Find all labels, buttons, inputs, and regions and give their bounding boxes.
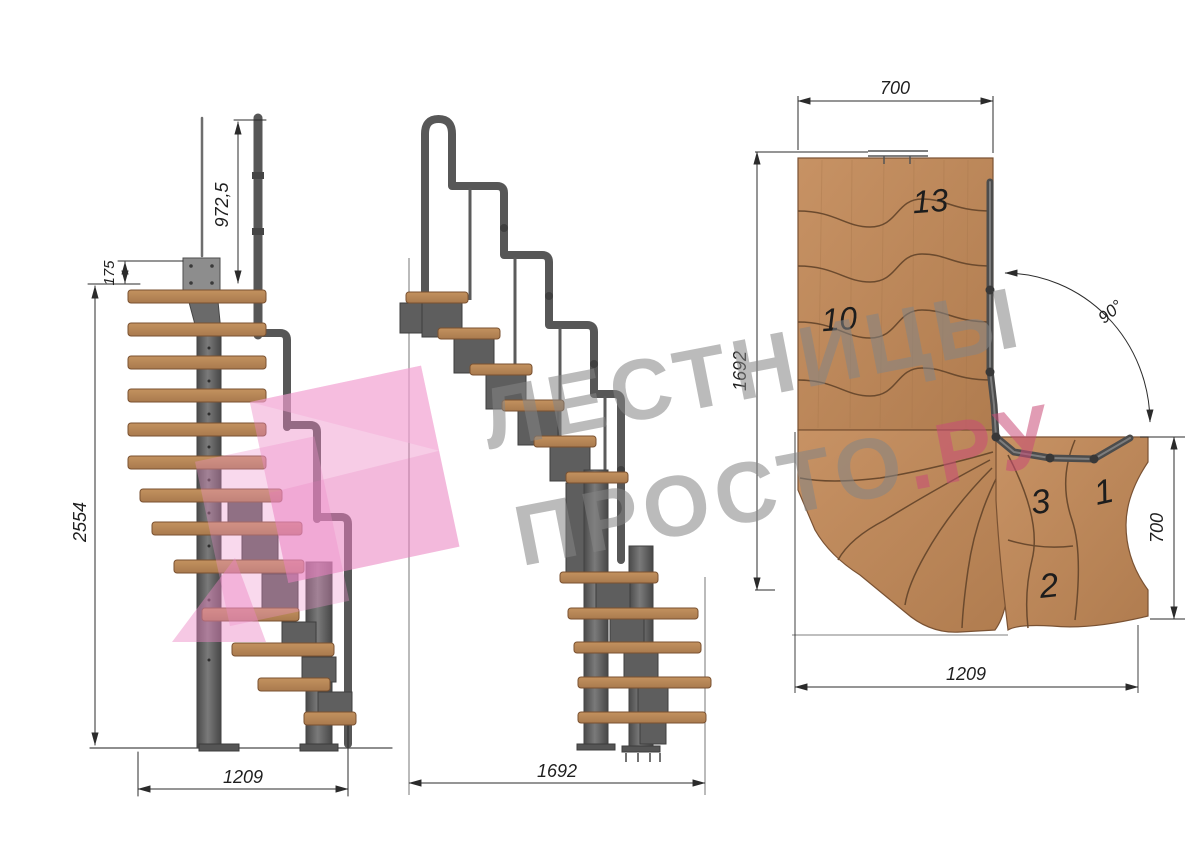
dim-label-plan-700-top: 700 — [880, 78, 910, 98]
dim-label-175: 175 — [101, 260, 118, 286]
second-column-base-flange — [300, 744, 338, 751]
plan-dim-top-width: 700 — [798, 78, 993, 153]
side-dim-total-run: 1692 — [409, 761, 705, 783]
side-base-flange-2 — [622, 746, 660, 752]
rail-joint-collar — [252, 228, 264, 235]
plate-bolt — [189, 264, 193, 268]
dim-label-2554: 2554 — [70, 502, 90, 543]
plate-bolt — [210, 281, 214, 285]
side-elevation-view: 1692 — [400, 119, 711, 795]
dim-label-plan-700-right: 700 — [1147, 513, 1167, 543]
dim-label-side-1692: 1692 — [537, 761, 577, 781]
anchor-bolts — [626, 753, 660, 762]
plate-bolt — [210, 264, 214, 268]
side-base-flange-1 — [577, 744, 615, 750]
dim-label-plan-1209: 1209 — [946, 664, 986, 684]
column-base-flange — [199, 744, 239, 751]
dim-label-972-5: 972,5 — [212, 181, 232, 227]
front-dim-total-height: 2554 — [70, 286, 95, 745]
staircase-drawing: 972,5 175 2554 1209 — [0, 0, 1200, 849]
front-dim-plate-offset: 175 — [88, 260, 183, 286]
rail-joint-collar — [252, 172, 264, 179]
technical-drawing-canvas: 972,5 175 2554 1209 — [0, 0, 1200, 849]
dim-label-90deg: 90° — [1095, 296, 1127, 327]
mounting-plate — [183, 258, 220, 291]
dim-label-front-1209: 1209 — [223, 767, 263, 787]
step-label-13: 13 — [911, 182, 949, 220]
plate-bolt — [189, 281, 193, 285]
step-label-2: 2 — [1036, 566, 1060, 606]
